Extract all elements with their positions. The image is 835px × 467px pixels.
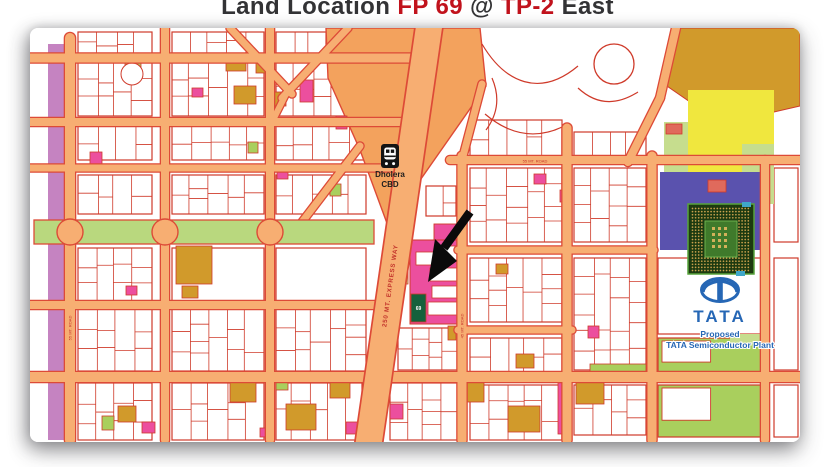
chip-pin: [747, 236, 749, 238]
chip-pin: [747, 220, 749, 222]
chip-pin: [692, 267, 694, 269]
chip-pin: [710, 211, 712, 213]
chip-pin: [723, 263, 725, 265]
chip-pin: [732, 257, 734, 259]
road-label-top-right: 55 MT. ROAD: [523, 158, 548, 163]
chip-pin: [735, 257, 737, 259]
zoned-plot: [508, 406, 540, 432]
chip-pin: [723, 211, 725, 213]
chip-pin: [732, 270, 734, 272]
chip-pin: [738, 236, 740, 238]
road-label-right: 45 MT. ROAD: [460, 314, 465, 339]
chip-pin: [726, 217, 728, 219]
chip-pin: [741, 242, 743, 244]
chip-pin: [741, 248, 743, 250]
chip-pin: [692, 229, 694, 231]
chip-pin: [732, 263, 734, 265]
chip-pin: [692, 223, 694, 225]
chip-pin: [695, 248, 697, 250]
chip-pin: [744, 223, 746, 225]
cbd-label: CBD: [381, 180, 399, 189]
chip-pin: [704, 267, 706, 269]
chip-pin: [701, 214, 703, 216]
chip-pin: [692, 254, 694, 256]
proposed-label: Proposed: [700, 329, 739, 339]
chip-pin: [744, 245, 746, 247]
salmon-plot: [708, 180, 726, 192]
chip-pin: [716, 208, 718, 210]
chip-pin: [692, 217, 694, 219]
chip-pin: [747, 248, 749, 250]
chip-pin: [738, 263, 740, 265]
chip-pin: [692, 232, 694, 234]
chip-pin: [692, 260, 694, 262]
chip-pin: [704, 217, 706, 219]
chip-pin: [744, 211, 746, 213]
chip-pin: [747, 226, 749, 228]
chip-pin: [744, 239, 746, 241]
title-text: Land Location: [221, 0, 397, 20]
chip-pin: [698, 223, 700, 225]
chip-pin: [747, 260, 749, 262]
chip-pin: [738, 267, 740, 269]
city-block: [426, 186, 456, 216]
title-tp2: TP-2: [501, 0, 555, 20]
city-block: [78, 32, 152, 54]
chip-pin: [716, 257, 718, 259]
chip-pin: [726, 263, 728, 265]
plot-fp69-label: 69: [416, 306, 422, 312]
chip-pin: [692, 263, 694, 265]
chip-pin: [738, 226, 740, 228]
chip-pin: [720, 211, 722, 213]
chip-pin: [726, 211, 728, 213]
chip-pin: [695, 242, 697, 244]
chip-pin: [701, 236, 703, 238]
chip-pin: [716, 211, 718, 213]
city-block: [78, 126, 152, 160]
chip-pin: [704, 208, 706, 210]
chip-pin: [710, 208, 712, 210]
chip-pin: [747, 239, 749, 241]
chip-pin: [744, 248, 746, 250]
roundabout: [257, 219, 283, 245]
road-label-left: 55 MT. ROAD: [68, 316, 73, 341]
chip-pin: [698, 242, 700, 244]
roundabout: [57, 219, 83, 245]
dholera-land-map: 69250 MT. EXPRESS WAY55 MT. ROAD45 MT. R…: [30, 28, 800, 442]
chip-pin: [704, 257, 706, 259]
chip-pin: [738, 229, 740, 231]
zoned-plot: [102, 416, 114, 430]
chip-pin: [701, 242, 703, 244]
metro-station-icon: [385, 162, 388, 165]
roundabout: [152, 219, 178, 245]
chip-pin: [698, 232, 700, 234]
chip-pin: [747, 267, 749, 269]
chip-pin: [692, 226, 694, 228]
chip-pad: [712, 245, 715, 248]
chip-pin: [710, 217, 712, 219]
chip-pin: [713, 263, 715, 265]
city-block: [774, 385, 798, 437]
chip-pad: [718, 233, 721, 236]
chip-pin: [741, 229, 743, 231]
chip-pin: [695, 208, 697, 210]
zoned-plot: [176, 246, 212, 284]
chip-pin: [747, 214, 749, 216]
chip-pin: [738, 217, 740, 219]
chip-pin: [695, 220, 697, 222]
zoned-plot: [576, 382, 604, 404]
chip-pin: [720, 214, 722, 216]
chip-pin: [713, 257, 715, 259]
zoned-plot: [330, 382, 350, 398]
round-plot: [121, 63, 143, 85]
zoned-plot: [516, 354, 534, 368]
chip-pin: [695, 214, 697, 216]
chip-pin: [729, 270, 731, 272]
chip-pin: [695, 260, 697, 262]
chip-pin: [738, 239, 740, 241]
chip-pin: [701, 220, 703, 222]
chip-pin: [747, 270, 749, 272]
chip-pin: [695, 245, 697, 247]
chip-pin: [692, 214, 694, 216]
chip-pin: [701, 263, 703, 265]
chip-pin: [741, 251, 743, 253]
zoned-plot: [390, 404, 403, 419]
chip-pin: [704, 270, 706, 272]
chip-pin: [698, 208, 700, 210]
zoned-plot: [234, 86, 256, 104]
chip-pin: [707, 217, 709, 219]
chip-pin: [723, 257, 725, 259]
chip-pin: [729, 214, 731, 216]
city-block: [172, 175, 264, 214]
chip-pin: [707, 260, 709, 262]
chip-pin: [720, 270, 722, 272]
chip-pin: [695, 263, 697, 265]
zoned-plot: [142, 422, 155, 433]
city-block: [78, 175, 152, 214]
boulevard-layer: [34, 219, 374, 245]
chip-pin: [698, 263, 700, 265]
chip-pin: [744, 254, 746, 256]
chip-pin: [695, 232, 697, 234]
chip-pin: [695, 211, 697, 213]
chip-pin: [747, 254, 749, 256]
chip-pad: [718, 239, 721, 242]
chip-pin: [747, 251, 749, 253]
salmon-plot: [666, 124, 682, 134]
chip-mark: [742, 202, 751, 207]
chip-pin: [695, 226, 697, 228]
chip-pin: [732, 260, 734, 262]
chip-pin: [701, 270, 703, 272]
chip-pin: [723, 267, 725, 269]
chip-pin: [698, 214, 700, 216]
chip-pin: [698, 217, 700, 219]
chip-pin: [698, 260, 700, 262]
chip-pin: [729, 208, 731, 210]
chip-pin: [707, 267, 709, 269]
chip-pin: [698, 236, 700, 238]
green-boulevard: [34, 220, 374, 244]
chip-pin: [692, 236, 694, 238]
chip-pin: [741, 217, 743, 219]
chip-pin: [744, 251, 746, 253]
chip-pin: [692, 242, 694, 244]
chip-pin: [723, 270, 725, 272]
chip-pin: [741, 226, 743, 228]
chip-pad: [724, 233, 727, 236]
chip-pin: [735, 211, 737, 213]
tata-logo: [717, 279, 723, 302]
chip-pin: [732, 214, 734, 216]
chip-pin: [701, 257, 703, 259]
city-block: [774, 258, 798, 370]
chip-pin: [735, 217, 737, 219]
chip-pin: [723, 260, 725, 262]
chip-pin: [741, 232, 743, 234]
chip-pin: [747, 242, 749, 244]
chip-pin: [713, 270, 715, 272]
chip-pin: [716, 263, 718, 265]
city-block: [574, 168, 646, 242]
chip-pin: [744, 214, 746, 216]
chip-pin: [701, 226, 703, 228]
chip-pin: [695, 223, 697, 225]
zoned-plot: [248, 142, 258, 153]
chip-pin: [710, 270, 712, 272]
chip-pin: [701, 254, 703, 256]
metro-station-icon: [384, 156, 396, 158]
village-pond: [594, 44, 634, 84]
chip-pin: [692, 251, 694, 253]
chip-pad: [724, 239, 727, 242]
chip-pin: [744, 220, 746, 222]
chip-pin: [720, 267, 722, 269]
chip-pin: [741, 214, 743, 216]
chip-pin: [741, 245, 743, 247]
zoned-plot: [588, 326, 599, 338]
chip-pin: [744, 232, 746, 234]
chip-pin: [716, 214, 718, 216]
chip-pin: [701, 260, 703, 262]
chip-pin: [707, 257, 709, 259]
chip-pin: [723, 214, 725, 216]
chip-pin: [744, 242, 746, 244]
zoned-plot: [230, 382, 256, 402]
map-figure: 69250 MT. EXPRESS WAY55 MT. ROAD45 MT. R…: [30, 28, 800, 442]
zoned-plot: [286, 404, 316, 430]
chip-pin: [741, 208, 743, 210]
chip-pin: [695, 229, 697, 231]
chip-pin: [713, 267, 715, 269]
chip-pin: [738, 214, 740, 216]
chip-pin: [701, 211, 703, 213]
chip-pin: [695, 239, 697, 241]
chip-pad: [718, 227, 721, 230]
chip-pin: [726, 267, 728, 269]
chip-pin: [695, 251, 697, 253]
chip-pin: [732, 211, 734, 213]
chip-pin: [744, 229, 746, 231]
title-east: East: [555, 0, 614, 20]
chip-pin: [704, 260, 706, 262]
chip-pin: [744, 208, 746, 210]
chip-pin: [747, 217, 749, 219]
zoned-plot: [192, 88, 203, 97]
metro-station-icon: [392, 162, 395, 165]
chip-pin: [720, 208, 722, 210]
tata-wordmark: TATA: [693, 307, 747, 326]
chip-pin: [723, 208, 725, 210]
chip-pin: [738, 254, 740, 256]
chip-pin: [704, 214, 706, 216]
chip-pin: [695, 254, 697, 256]
chip-pin: [695, 257, 697, 259]
chip-pin: [741, 260, 743, 262]
metro-station-icon: [384, 148, 396, 160]
chip-pin: [701, 245, 703, 247]
page-title: Land Location FP 69 @ TP-2 East: [0, 0, 835, 21]
chip-pin: [710, 214, 712, 216]
chip-pin: [729, 260, 731, 262]
chip-pin: [732, 208, 734, 210]
chip-pin: [738, 251, 740, 253]
chip-pad: [712, 239, 715, 242]
chip-pin: [732, 217, 734, 219]
chip-pin: [707, 270, 709, 272]
chip-pad: [724, 227, 727, 230]
chip-pin: [701, 208, 703, 210]
chip-pin: [726, 208, 728, 210]
plant-label: TATA Semiconductor Plant: [666, 340, 774, 350]
chip-pin: [732, 267, 734, 269]
chip-pin: [738, 248, 740, 250]
city-block: [470, 258, 562, 322]
chip-pin: [738, 220, 740, 222]
title-fp69: FP 69: [397, 0, 463, 20]
chip-pin: [726, 214, 728, 216]
chip-pin: [707, 211, 709, 213]
city-block: [78, 248, 152, 301]
chip-pin: [720, 257, 722, 259]
chip-pin: [692, 239, 694, 241]
chip-pin: [744, 260, 746, 262]
chip-graphic: [688, 202, 754, 276]
chip-pin: [701, 239, 703, 241]
chip-pad: [724, 245, 727, 248]
chip-pin: [701, 223, 703, 225]
city-block: [774, 168, 798, 242]
chip-pin: [692, 270, 694, 272]
chip-pin: [735, 260, 737, 262]
slide: { "title": { "part1": "Land Location ", …: [0, 0, 835, 467]
chip-pin: [720, 217, 722, 219]
chip-pin: [716, 270, 718, 272]
parcel: [662, 388, 711, 420]
chip-pin: [744, 257, 746, 259]
chip-pin: [738, 242, 740, 244]
chip-pin: [720, 263, 722, 265]
chip-pin: [738, 257, 740, 259]
city-block: [470, 120, 562, 156]
chip-pin: [713, 214, 715, 216]
chip-pin: [701, 267, 703, 269]
chip-pin: [726, 260, 728, 262]
chip-pin: [729, 263, 731, 265]
chip-pin: [710, 260, 712, 262]
chip-pin: [744, 226, 746, 228]
chip-pin: [741, 236, 743, 238]
chip-pin: [735, 263, 737, 265]
chip-pin: [726, 270, 728, 272]
chip-pin: [735, 208, 737, 210]
chip-pin: [738, 211, 740, 213]
chip-pad: [718, 245, 721, 248]
chip-pin: [698, 229, 700, 231]
cbd-label: Dholera: [375, 170, 405, 179]
chip-pin: [695, 217, 697, 219]
chip-pin: [747, 257, 749, 259]
chip-pin: [701, 251, 703, 253]
chip-pin: [729, 217, 731, 219]
chip-pin: [729, 211, 731, 213]
chip-pad: [712, 227, 715, 230]
chip-pin: [741, 254, 743, 256]
chip-pad: [712, 233, 715, 236]
chip-pin: [744, 236, 746, 238]
chip-pin: [738, 245, 740, 247]
chip-pin: [707, 263, 709, 265]
chip-pin: [698, 254, 700, 256]
chip-pin: [741, 257, 743, 259]
chip-pin: [716, 260, 718, 262]
chip-pin: [744, 217, 746, 219]
chip-pin: [695, 270, 697, 272]
chip-pin: [713, 217, 715, 219]
chip-pin: [741, 220, 743, 222]
zoned-plot: [496, 264, 508, 274]
chip-pin: [713, 208, 715, 210]
city-block: [276, 248, 366, 301]
chip-pin: [741, 263, 743, 265]
chip-pin: [698, 267, 700, 269]
chip-pin: [741, 267, 743, 269]
chip-pin: [747, 229, 749, 231]
metro-station-icon: [391, 150, 394, 153]
zoned-plot: [126, 286, 137, 295]
chip-pin: [701, 248, 703, 250]
chip-mark: [736, 271, 745, 276]
chip-pin: [692, 208, 694, 210]
chip-pin: [713, 260, 715, 262]
chip-pin: [698, 226, 700, 228]
city-block: [172, 309, 264, 371]
chip-pin: [735, 214, 737, 216]
chip-pin: [701, 217, 703, 219]
chip-pin: [738, 223, 740, 225]
chip-pin: [735, 267, 737, 269]
city-block: [470, 168, 562, 242]
chip-pin: [710, 267, 712, 269]
chip-pin: [738, 260, 740, 262]
chip-pin: [729, 257, 731, 259]
chip-pin: [741, 223, 743, 225]
